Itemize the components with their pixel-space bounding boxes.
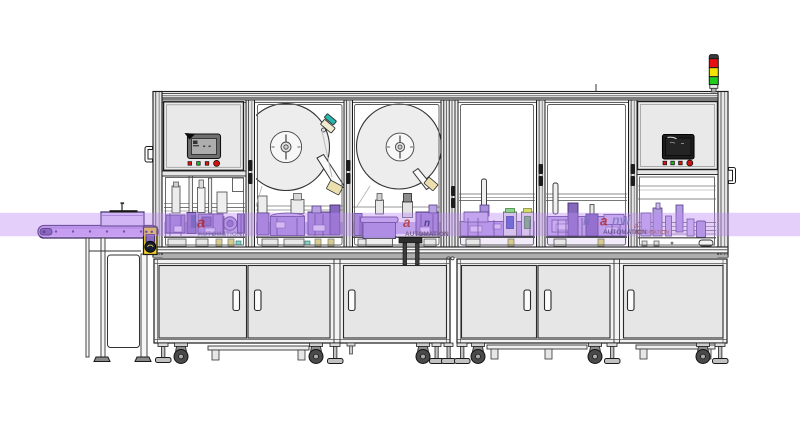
svg-text:AUTOMATION: AUTOMATION xyxy=(405,231,449,238)
svg-text:a: a xyxy=(403,215,411,230)
svg-text:AUTOMATION: AUTOMATION xyxy=(634,230,670,236)
svg-text:a: a xyxy=(634,221,639,230)
svg-text:n: n xyxy=(424,218,430,229)
svg-text:a: a xyxy=(197,215,205,232)
svg-text:a: a xyxy=(600,214,608,229)
svg-text:nvi: nvi xyxy=(612,214,631,228)
svg-text:li: li xyxy=(583,213,591,228)
svg-text:AUTOMATION: AUTOMATION xyxy=(198,231,242,238)
